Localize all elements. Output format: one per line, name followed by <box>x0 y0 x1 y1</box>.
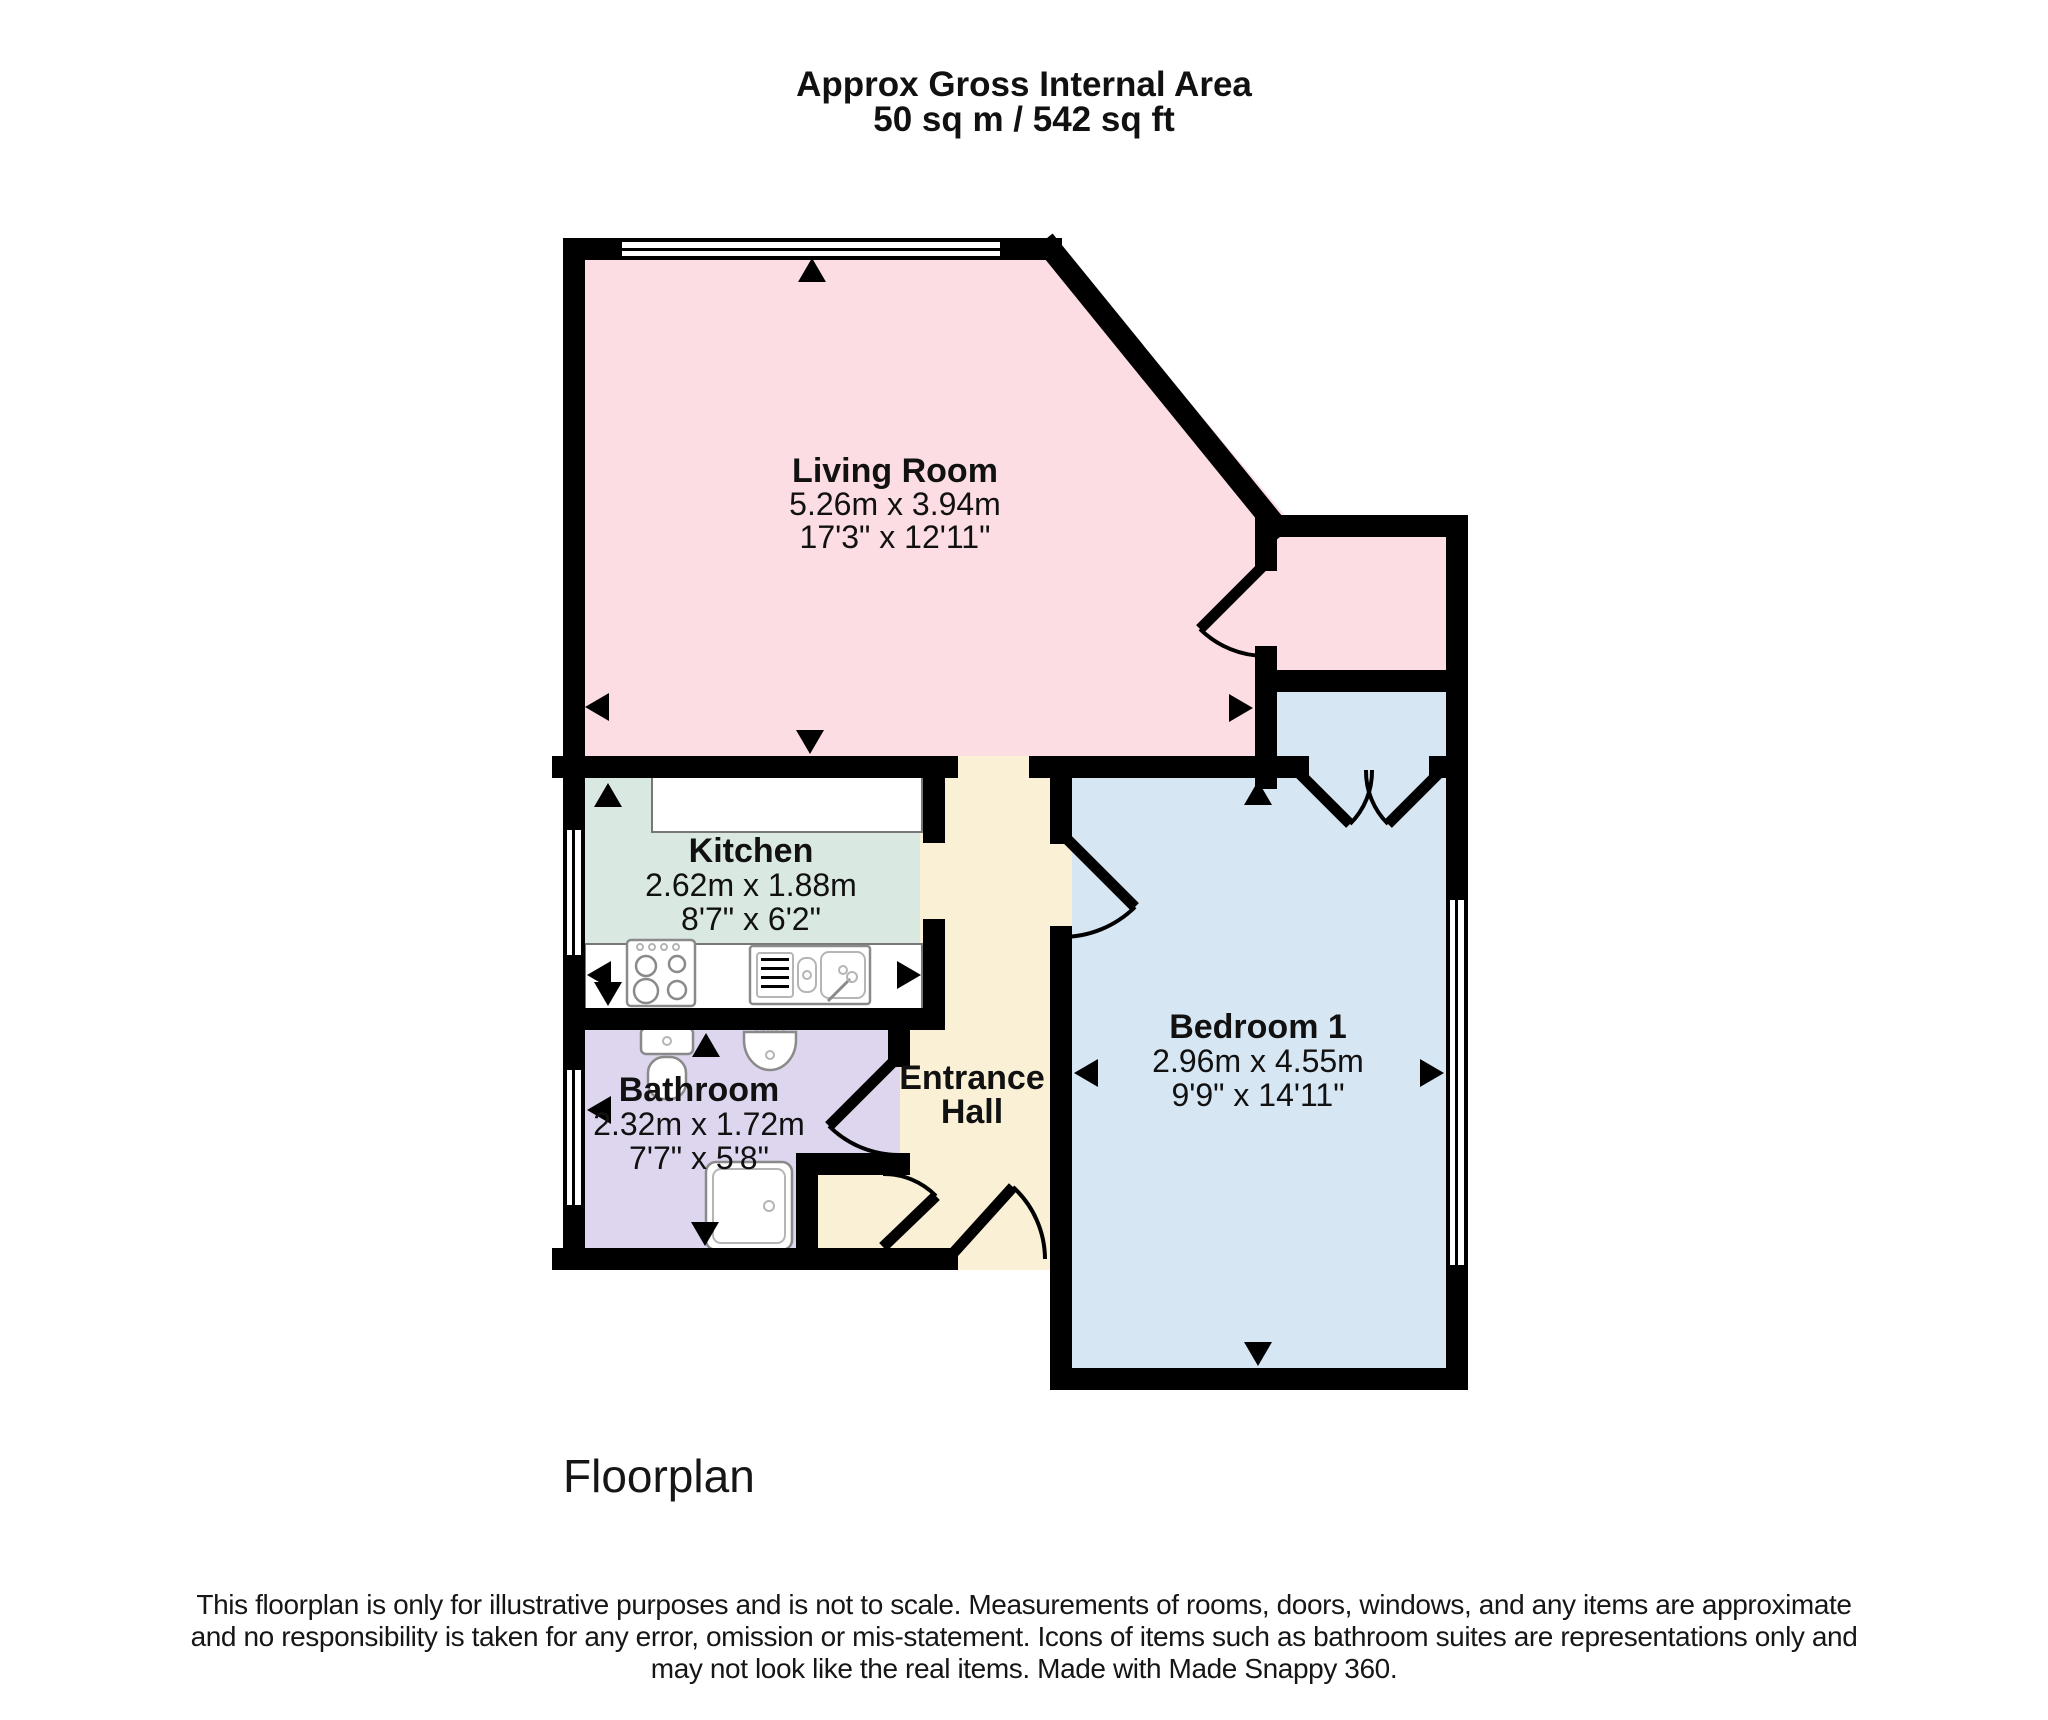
title-line2: 50 sq m / 542 sq ft <box>873 100 1175 139</box>
living-room-name: Living Room <box>792 452 998 490</box>
bathroom-dim-metric: 2.32m x 1.72m <box>593 1106 805 1142</box>
living-window <box>622 238 1000 260</box>
kitchen-window <box>563 830 585 955</box>
entrance-hall-name-line1: Entrance <box>899 1059 1045 1097</box>
bedroom-name: Bedroom 1 <box>1169 1008 1347 1046</box>
kitchen-dim-metric: 2.62m x 1.88m <box>645 867 857 903</box>
floorplan-canvas: Approx Gross Internal Area 50 sq m / 542… <box>0 0 2048 1720</box>
stove-icon <box>627 940 695 1006</box>
bedroom-dim-metric: 2.96m x 4.55m <box>1152 1043 1364 1079</box>
bedroom-window <box>1446 900 1468 1265</box>
floorplan-label: Floorplan <box>563 1450 755 1502</box>
sink-icon <box>750 946 870 1004</box>
bedroom-dim-imperial: 9'9" x 14'11" <box>1171 1077 1344 1113</box>
living-room-dim-imperial: 17'3" x 12'11" <box>800 519 991 555</box>
floorplan-page: Approx Gross Internal Area 50 sq m / 542… <box>0 0 2048 1720</box>
bathroom-dim-imperial: 7'7" x 5'8" <box>629 1140 769 1176</box>
kitchen-dim-imperial: 8'7" x 6'2" <box>681 901 821 937</box>
bathroom-name: Bathroom <box>619 1071 780 1109</box>
bathroom-window <box>563 1070 585 1205</box>
title-line1: Approx Gross Internal Area <box>796 65 1252 104</box>
kitchen-worktop-top <box>652 776 922 832</box>
entrance-hall-name-line2: Hall <box>941 1093 1003 1131</box>
disclaimer-line1: This floorplan is only for illustrative … <box>196 1589 1851 1620</box>
kitchen-name: Kitchen <box>689 832 814 870</box>
disclaimer-line3: may not look like the real items. Made w… <box>651 1653 1397 1684</box>
disclaimer-line2: and no responsibility is taken for any e… <box>191 1621 1858 1652</box>
living-room-dim-metric: 5.26m x 3.94m <box>789 486 1001 522</box>
